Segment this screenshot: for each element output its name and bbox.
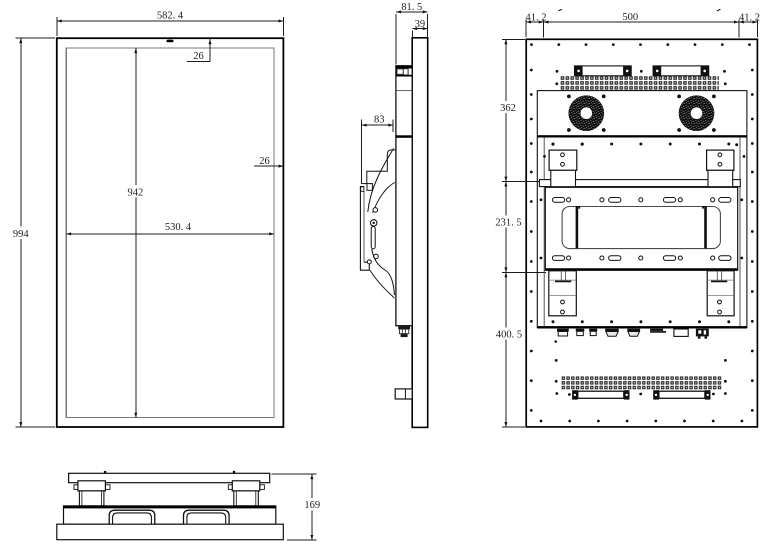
svg-text:362: 362 [500, 103, 516, 114]
svg-text:942: 942 [128, 188, 144, 199]
svg-text:530. 4: 530. 4 [165, 222, 192, 233]
svg-text:994: 994 [13, 229, 30, 240]
svg-text:41. 2: 41. 2 [739, 12, 760, 23]
svg-text:169: 169 [304, 500, 320, 511]
svg-text:582. 4: 582. 4 [157, 10, 184, 21]
svg-text:26: 26 [193, 51, 204, 62]
svg-text:39: 39 [415, 19, 426, 30]
svg-text:26: 26 [259, 156, 270, 167]
svg-text:231. 5: 231. 5 [495, 217, 521, 228]
svg-text:83: 83 [374, 115, 385, 126]
svg-text:400. 5: 400. 5 [496, 329, 522, 340]
svg-text:500: 500 [622, 12, 638, 23]
svg-text:81. 5: 81. 5 [401, 2, 422, 13]
svg-text:41. 2: 41. 2 [526, 12, 547, 23]
